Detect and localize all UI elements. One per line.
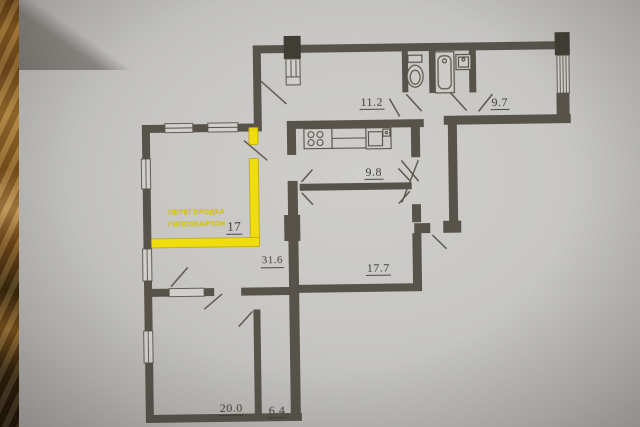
floor-plan: 11.2 9.7 9.8 31.6 17.7 17 20.0 6.4 ПЕРЕГ… bbox=[0, 0, 640, 427]
drywall-partition-highlight bbox=[150, 127, 260, 247]
toilet-tank-icon bbox=[408, 55, 422, 62]
room-area-label-central-hall: 31.6 bbox=[261, 255, 284, 268]
walls bbox=[141, 41, 575, 423]
room-area-label-room-9-7: 9.7 bbox=[490, 96, 509, 110]
photo-of-floor-plan: 11.2 9.7 9.8 31.6 17.7 17 20.0 6.4 ПЕРЕГ… bbox=[0, 0, 640, 427]
room-area-label-room-17-7: 17.7 bbox=[366, 262, 391, 276]
bathroom-fixtures bbox=[407, 51, 472, 93]
room-area-label-hallway: 11.2 bbox=[359, 96, 384, 110]
room-area-label-room-6-4: 6.4 bbox=[268, 404, 287, 418]
room-area-label-new-room: 17 bbox=[226, 220, 242, 235]
floor-plan-drawing bbox=[0, 0, 640, 427]
vent-shaft bbox=[286, 59, 300, 85]
partition-annotation-line2: ГИПСОКАРТОН bbox=[168, 221, 225, 229]
kitchen-fixtures bbox=[304, 128, 391, 150]
room-area-label-kitchen: 9.8 bbox=[364, 166, 383, 180]
room-area-label-room-20-0: 20.0 bbox=[219, 402, 244, 416]
partition-annotation-line1: ПЕРЕГОРОДКА bbox=[168, 209, 225, 217]
stove-icon bbox=[304, 128, 332, 148]
